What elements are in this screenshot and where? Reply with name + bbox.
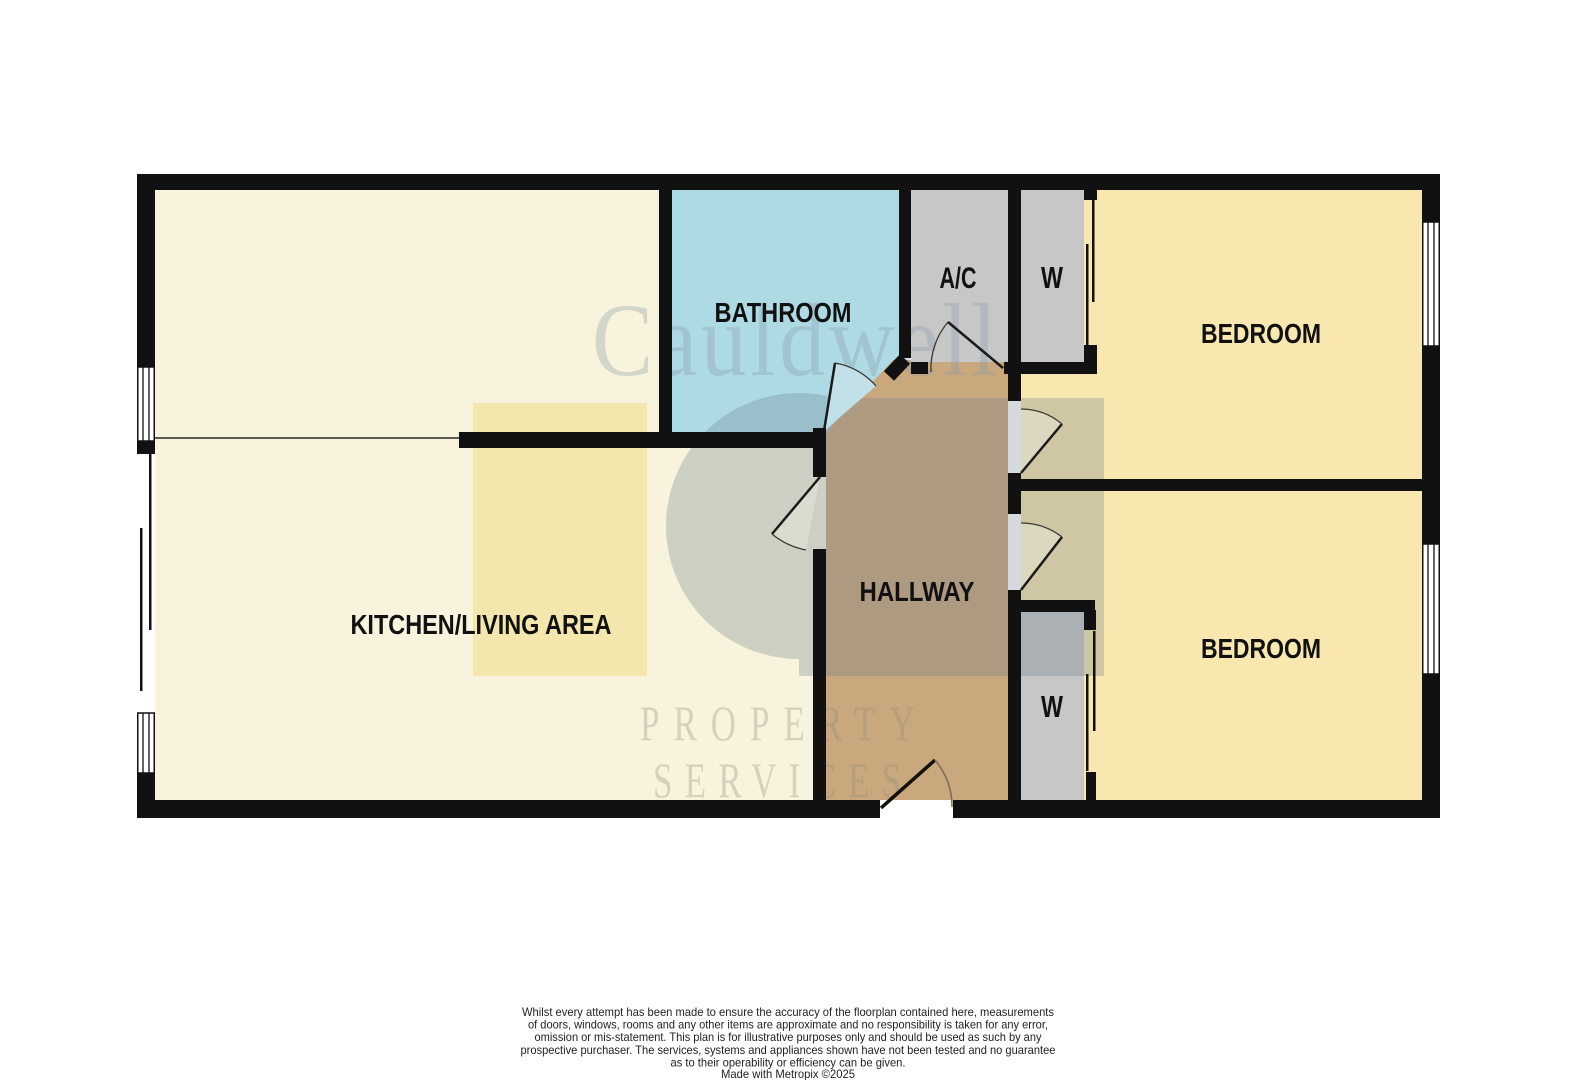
svg-text:A/C: A/C [940,262,977,295]
svg-text:PROPERTY: PROPERTY [640,697,929,751]
svg-text:Made with Metropix ©2025: Made with Metropix ©2025 [721,1067,855,1080]
svg-text:BATHROOM: BATHROOM [715,297,852,328]
svg-text:BEDROOM: BEDROOM [1201,633,1321,664]
svg-text:W: W [1041,260,1064,295]
svg-text:W: W [1041,689,1064,724]
svg-text:BEDROOM: BEDROOM [1201,318,1321,349]
svg-text:HALLWAY: HALLWAY [860,576,975,607]
svg-text:KITCHEN/LIVING AREA: KITCHEN/LIVING AREA [351,609,612,640]
